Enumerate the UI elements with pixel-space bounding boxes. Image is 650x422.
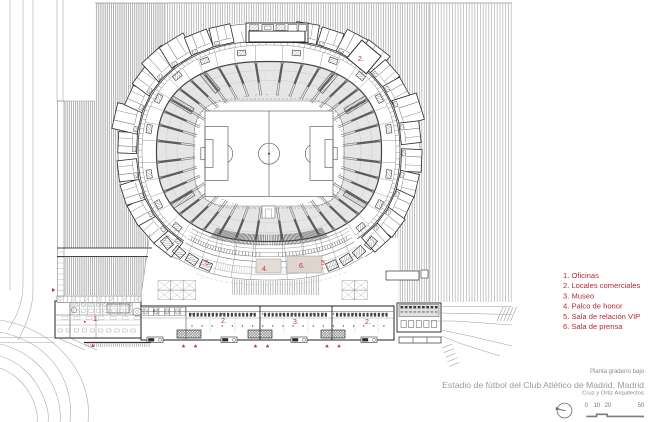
svg-text:3. Museo: 3. Museo — [563, 291, 594, 300]
svg-text:Cruz y Ortiz Arquitectos: Cruz y Ortiz Arquitectos — [582, 391, 644, 397]
svg-text:5. Sala de relación VIP: 5. Sala de relación VIP — [563, 312, 640, 321]
svg-text:2.: 2. — [365, 319, 371, 326]
svg-text:20: 20 — [605, 403, 612, 409]
svg-text:4. Palco de honor: 4. Palco de honor — [563, 302, 623, 311]
svg-text:Planta graderío bajo: Planta graderío bajo — [590, 369, 645, 375]
svg-text:10: 10 — [593, 403, 600, 409]
svg-text:6.: 6. — [299, 263, 305, 270]
svg-text:4.: 4. — [262, 266, 268, 273]
svg-text:5.: 5. — [321, 260, 327, 267]
svg-text:1. Oficinas: 1. Oficinas — [563, 271, 599, 280]
svg-text:2.: 2. — [358, 56, 364, 63]
svg-text:Estadio de fútbol del Club Atl: Estadio de fútbol del Club Atlético de M… — [442, 380, 644, 390]
svg-text:2. Locales comerciales: 2. Locales comerciales — [563, 281, 640, 290]
svg-text:5.: 5. — [205, 260, 211, 267]
svg-text:50: 50 — [638, 403, 645, 409]
svg-text:1.: 1. — [93, 316, 99, 323]
svg-text:2.: 2. — [221, 318, 227, 325]
svg-text:6. Sala de prensa: 6. Sala de prensa — [563, 322, 623, 331]
svg-text:3.: 3. — [293, 319, 299, 326]
